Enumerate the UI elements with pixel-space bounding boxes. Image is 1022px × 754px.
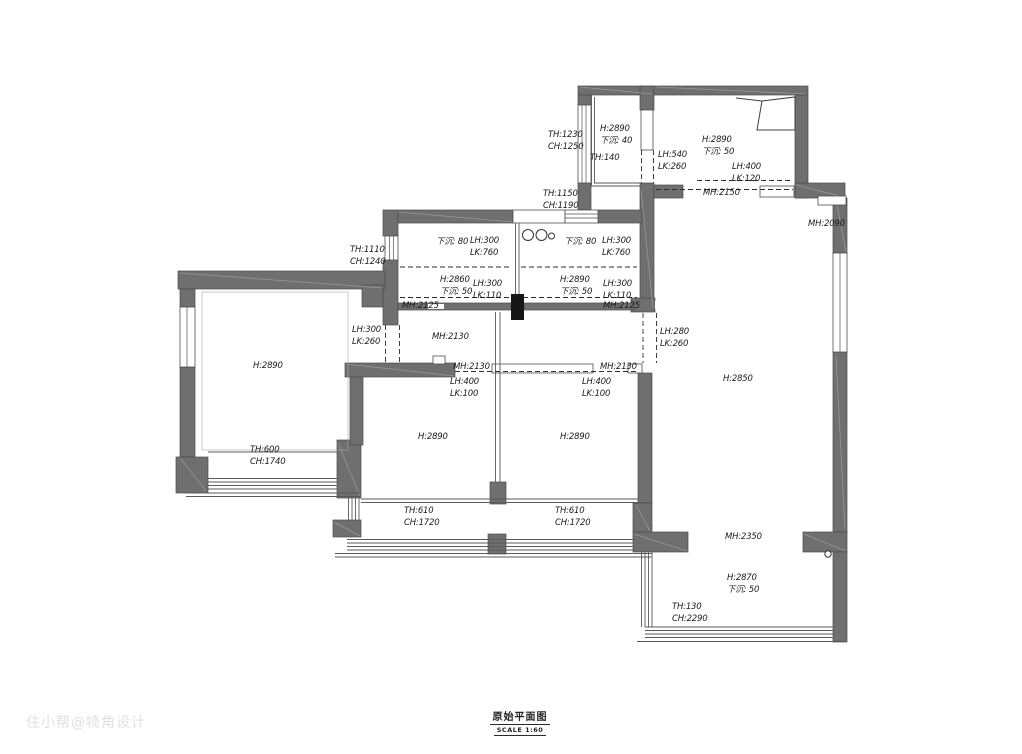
- window-mullion-lines: [187, 105, 840, 367]
- door-leaf-icon: [736, 97, 795, 130]
- pipe-circle-icon: [825, 551, 831, 557]
- stove-burners-icon: [523, 230, 555, 241]
- title-block: 原始平面图 SCALE 1:60: [488, 708, 552, 736]
- drawing-scale: SCALE 1:60: [488, 726, 552, 734]
- floor-plan-sheet: TH:1230CH:1250H:2890下沉: 40TH:140LH:540LK…: [0, 0, 1022, 754]
- drawing-title: 原始平面图: [488, 708, 552, 723]
- windows: [180, 105, 847, 373]
- scale-underline: [494, 735, 546, 736]
- floor-plan-drawing: [0, 0, 1022, 754]
- door-pivot-block: [511, 294, 524, 320]
- watermark-text: 住小帮@犄角设计: [26, 712, 146, 732]
